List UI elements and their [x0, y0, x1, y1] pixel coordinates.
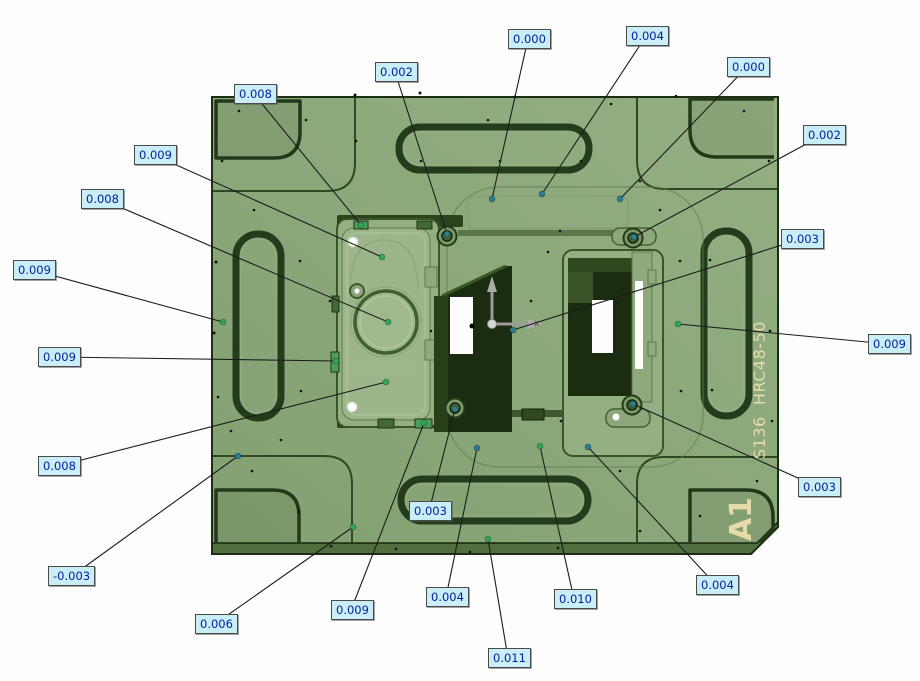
measurement-label[interactable]: 0.002 [803, 125, 846, 145]
measurement-label[interactable]: -0.003 [48, 566, 95, 586]
clip-tab [378, 419, 394, 428]
measurement-label[interactable]: 0.000 [727, 57, 770, 77]
right-insert-pad [563, 228, 663, 456]
measurement-point[interactable] [510, 327, 516, 333]
measurement-label[interactable]: 0.003 [409, 501, 452, 521]
measurement-point[interactable] [489, 196, 495, 202]
measurement-point[interactable] [617, 196, 623, 202]
measurement-label[interactable]: 0.006 [195, 614, 238, 634]
clip-tab [417, 221, 432, 229]
x-axis-label: x [534, 319, 540, 329]
measurement-label[interactable]: 0.004 [426, 587, 469, 607]
through-hole [450, 297, 473, 354]
corner-hole [347, 402, 357, 412]
measurement-label[interactable]: 0.009 [134, 145, 177, 165]
measurement-point[interactable] [537, 443, 543, 449]
measurement-label[interactable]: 0.008 [38, 456, 81, 476]
measurement-label[interactable]: 0.003 [798, 477, 841, 497]
measurement-point[interactable] [452, 406, 458, 412]
measurement-point[interactable] [485, 536, 491, 542]
through-hole [592, 300, 613, 353]
measurement-point[interactable] [383, 379, 389, 385]
measurement-label[interactable]: 0.009 [38, 347, 81, 367]
leader-line [33, 270, 223, 322]
measurement-label[interactable]: 0.008 [81, 189, 124, 209]
measurement-label[interactable]: 0.009 [13, 260, 56, 280]
measurement-label[interactable]: 0.010 [554, 589, 597, 609]
measurement-point[interactable] [350, 524, 356, 530]
measurement-point[interactable] [421, 420, 427, 426]
measurement-point[interactable] [444, 231, 450, 237]
3d-viewport[interactable]: x S136 HRC48-50 A1 [0, 0, 920, 681]
measurement-point[interactable] [358, 222, 364, 228]
corner-slot-bottom-left [216, 490, 299, 543]
measurement-point[interactable] [474, 445, 480, 451]
measurement-point[interactable] [630, 401, 636, 407]
leader-line [488, 539, 508, 658]
measurement-point[interactable] [235, 453, 241, 459]
measurement-point[interactable] [220, 319, 226, 325]
measurement-label[interactable]: 0.009 [868, 334, 911, 354]
corner-slot-top-left [216, 101, 300, 158]
measurement-label[interactable]: 0.004 [626, 26, 669, 46]
measurement-label[interactable]: 0.009 [331, 600, 374, 620]
measurement-label[interactable]: 0.008 [234, 84, 277, 104]
slot-hole [635, 281, 643, 369]
measurement-point[interactable] [539, 191, 545, 197]
measurement-label[interactable]: 0.011 [488, 648, 531, 668]
left-insert-pad [331, 219, 439, 428]
measurement-point[interactable] [631, 234, 637, 240]
measurement-label[interactable]: 0.002 [375, 62, 418, 82]
measurement-label[interactable]: 0.004 [696, 575, 739, 595]
measurement-label[interactable]: 0.003 [781, 229, 824, 249]
measurement-point[interactable] [675, 321, 681, 327]
inspection-view: x S136 HRC48-50 A1 0.0080.0020.0000.0040… [0, 0, 920, 681]
measurement-point[interactable] [333, 358, 339, 364]
corner-slot-top-right [690, 99, 774, 157]
measurement-point[interactable] [385, 319, 391, 325]
material-marking: S136 HRC48-50 [750, 321, 769, 459]
measurement-point[interactable] [379, 254, 385, 260]
plate-id-marking: A1 [724, 497, 759, 541]
measurement-label[interactable]: 0.000 [508, 29, 551, 49]
measurement-point[interactable] [585, 444, 591, 450]
